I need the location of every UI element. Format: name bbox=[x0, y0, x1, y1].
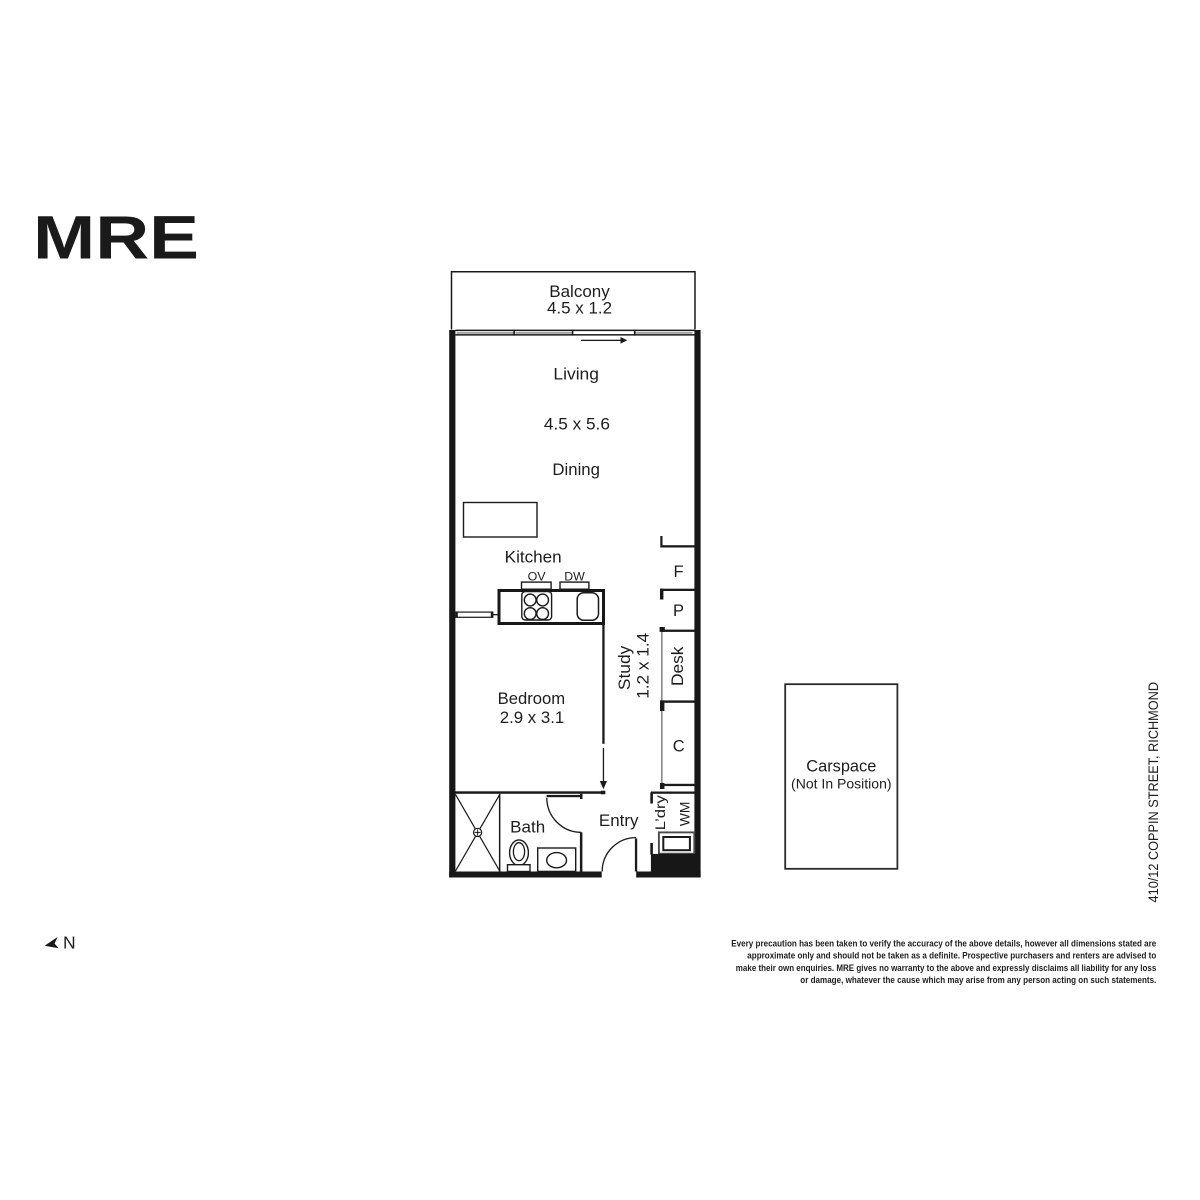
svg-text:Desk: Desk bbox=[669, 646, 687, 686]
svg-text:Every precaution has been take: Every precaution has been taken to verif… bbox=[731, 938, 1156, 948]
svg-text:DW: DW bbox=[564, 569, 585, 583]
svg-text:Kitchen: Kitchen bbox=[505, 549, 562, 567]
svg-text:F: F bbox=[673, 563, 683, 581]
svg-text:Carspace: Carspace bbox=[806, 758, 876, 776]
svg-text:P: P bbox=[673, 602, 684, 620]
svg-text:N: N bbox=[63, 933, 76, 953]
svg-text:Entry: Entry bbox=[599, 812, 639, 830]
svg-text:Dining: Dining bbox=[552, 461, 600, 479]
svg-text:WM: WM bbox=[676, 802, 692, 827]
svg-text:L’dry: L’dry bbox=[652, 795, 668, 830]
svg-text:Bedroom: Bedroom bbox=[498, 690, 566, 708]
svg-text:4.5 x 5.6: 4.5 x 5.6 bbox=[544, 416, 610, 434]
svg-text:410/12 COPPIN STREET, RICHMOND: 410/12 COPPIN STREET, RICHMOND bbox=[1145, 682, 1161, 903]
svg-text:Bath: Bath bbox=[510, 818, 545, 836]
svg-text:(Not In Position): (Not In Position) bbox=[791, 776, 892, 792]
svg-text:MRE: MRE bbox=[33, 204, 199, 272]
svg-text:2.9 x 3.1: 2.9 x 3.1 bbox=[500, 709, 565, 727]
svg-text:approximate only and should no: approximate only and should not be taken… bbox=[747, 951, 1157, 961]
svg-text:C: C bbox=[673, 738, 685, 756]
svg-text:Study: Study bbox=[616, 645, 634, 690]
svg-text:Balcony: Balcony bbox=[549, 283, 610, 301]
svg-text:Living: Living bbox=[553, 365, 599, 383]
svg-text:OV: OV bbox=[528, 569, 547, 583]
svg-text:or damage, whatever the cause: or damage, whatever the cause which may … bbox=[800, 975, 1156, 985]
svg-text:1.2 x 1.4: 1.2 x 1.4 bbox=[634, 633, 652, 699]
svg-text:4.5 x 1.2: 4.5 x 1.2 bbox=[547, 300, 612, 318]
svg-text:make their own enquiries. MRE: make their own enquiries. MRE gives no w… bbox=[736, 963, 1157, 973]
